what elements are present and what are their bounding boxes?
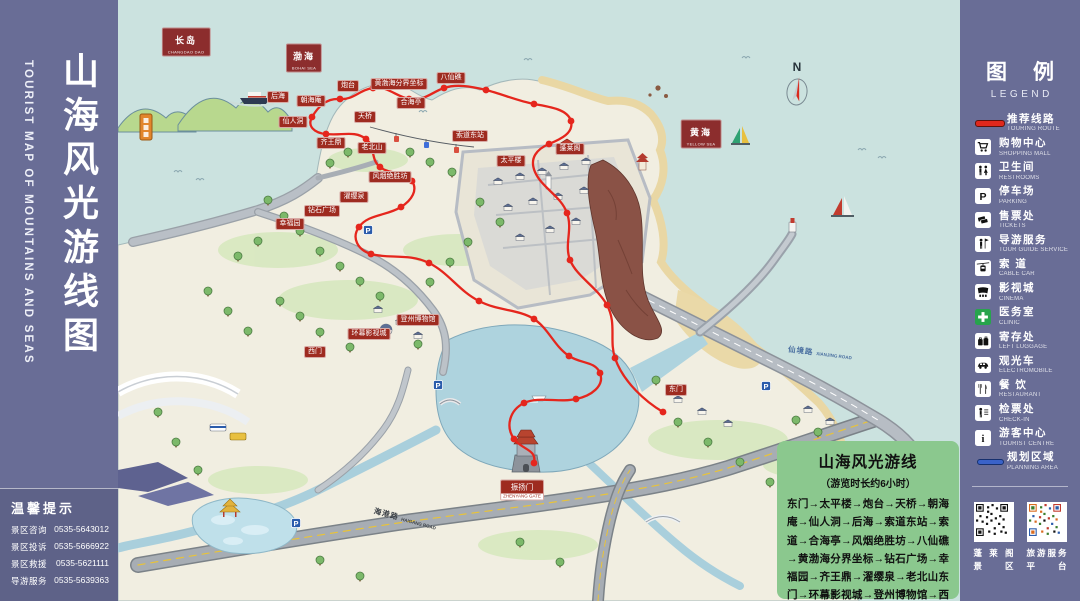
poi-houhai: 后海 [267,91,289,103]
map-title: 山海风光游线图 [52,52,104,360]
tickets-icon [975,212,991,228]
poi-xingfuyuan: 幸福园 [276,218,305,230]
poi-west-gate: 西门 [304,346,326,358]
restroom-icon [975,163,991,179]
poi-cinema-city: 环幕影视城 [348,328,391,340]
legend-parking: P 停车场PARKING [975,184,1080,208]
legend-clinic: 医务室CLINIC [975,305,1080,329]
map-title-english: TOURIST MAP OF MOUNTAINS AND SEAS [22,60,34,365]
route-box-duration: （游览时长约6小时） [787,475,949,490]
hotline-complaint: 景区投诉0535-5666922 [11,541,109,553]
poi-fengyanjuesheng-archway: 风烟绝胜坊 [369,171,412,183]
hotline-rescue: 景区救援0535-5621111 [11,558,109,570]
legend-left-luggage: 寄存处LEFT LUGGAGE [975,329,1080,353]
poi-penglai-pavilion: 蓬莱阁 [556,143,585,155]
sightseeing-car-icon [975,357,991,373]
tips-title: 温馨提示 [11,498,109,517]
poi-laobeishan: 老北山 [358,142,387,154]
fork-knife-icon [975,381,991,397]
clinic-cross-icon [975,309,991,325]
poi-east-gate: 东门 [665,384,687,396]
svg-text:P: P [979,191,986,203]
poi-sea-boundary-marker: 黄渤海分界坐标 [371,78,428,90]
route-line-icon [975,115,1005,131]
poi-paotai: 炮台 [337,80,359,92]
poi-zhuoyingquan: 濯缨泉 [340,191,369,203]
legend-restrooms: 卫生间RESTROOMS [975,159,1080,183]
legend-electromobile: 观光车ELECTROMOBILE [975,353,1080,377]
poi-tianqiao: 天桥 [354,111,376,123]
svg-text:P: P [763,382,768,391]
legend-title: 图例 [960,56,1080,86]
tour-guide-flag-icon [975,236,991,252]
shopping-cart-icon [975,139,991,155]
map-canvas: P P P P 长岛CHANGDAO DAO 渤海BOHAI SEA 黄海YEL… [118,0,960,601]
legend-tickets: 售票处TICKETS [975,208,1080,232]
legend-restaurant: 餐 饮RESTAURANT [975,377,1080,401]
poi-diamond-square: 钻石广场 [304,205,340,217]
bohai-sea-label: 渤海BOHAI SEA [286,44,322,73]
poi-chaohaian: 朝海庵 [297,95,326,107]
route-box-itinerary: 东门→太平楼→炮台→天桥→朝海庵→仙人洞→后海→索道东站→索道→合海亭→风烟绝胜… [787,495,949,601]
title-panel: TOURIST MAP OF MOUNTAINS AND SEAS 山海风光游线… [0,0,118,601]
tourist-map-page: P P P P 长岛CHANGDAO DAO 渤海BOHAI SEA 黄海YEL… [0,0,1080,601]
compass-needle-icon [782,72,813,111]
legend-shopping-mall: 购物中心SHOPPING MALL [975,135,1080,159]
cable-car-icon [975,260,991,276]
qr-service-platform: 旅游服务平台 [1027,502,1067,574]
poi-taipinglou: 太平楼 [497,155,526,167]
poi-cableway-east-station: 索道东站 [452,130,488,142]
qr-scenic-area-label: 蓬莱阁景区 [974,547,1014,574]
cinema-screen-icon [975,284,991,300]
qr-service-platform-label: 旅游服务平台 [1027,547,1067,574]
legend-items: 推荐线路TOURING ROUTE 购物中心SHOPPING MALL 卫生间R… [960,111,1080,474]
legend-subtitle: LEGEND [960,89,1080,100]
legend-panel: 图例 LEGEND 推荐线路TOURING ROUTE 购物中心SHOPPING… [960,0,1080,601]
qr-codes: 蓬莱阁景区 旅游 [960,502,1080,574]
tips-panel: 温馨提示 景区咨询0535-5643012 景区投诉0535-5666922 景… [0,488,118,601]
legend-cable-car: 索 道CABLE CAR [975,256,1080,280]
changdao-label: 长岛CHANGDAO DAO [162,28,211,57]
svg-text:P: P [435,381,440,390]
poi-hehaiting: 合海亭 [397,97,426,109]
planning-line-icon [975,454,1005,470]
svg-text:P: P [365,226,370,235]
poi-baxianjiao: 八仙礁 [437,72,466,84]
legend-planning-area: 规划区域PLANNING AREA [975,450,1080,474]
poi-xianrendong: 仙人洞 [279,116,308,128]
yellow-sea-label: 黄海YELLOW SEA [681,120,722,149]
route-summary-box: 山海风光游线 （游览时长约6小时） 东门→太平楼→炮台→天桥→朝海庵→仙人洞→后… [777,441,959,599]
legend-touring-route: 推荐线路TOURING ROUTE [975,111,1080,135]
info-icon: i [975,430,991,446]
hotline-consult: 景区咨询0535-5643012 [11,524,109,536]
qr-scenic-area: 蓬莱阁景区 [974,502,1014,574]
check-in-gate-icon [975,405,991,421]
legend-tourist-centre: i 游客中心TOURIST CENTRE [975,425,1080,449]
qr-scenic-area-image [974,502,1014,542]
poi-dengzhou-museum: 登州博物馆 [397,314,440,326]
poi-qiwangding: 齐王鼎 [317,137,346,149]
legend-cinema: 影视城CINEMA [975,280,1080,304]
legend-tour-guide: 导游服务TOUR GUIDE SERVICE [975,232,1080,256]
svg-text:P: P [293,519,298,528]
legend-divider [972,486,1068,487]
parking-icon: P [975,188,991,204]
luggage-icon [975,333,991,349]
legend-check-in: 检票处CHECK-IN [975,401,1080,425]
svg-text:i: i [982,433,985,444]
compass: N [784,60,810,115]
route-box-title: 山海风光游线 [787,450,949,472]
hotline-guide: 导游服务0535-5639363 [11,575,109,587]
qr-service-platform-image [1027,502,1067,542]
gate-sign [140,114,152,140]
breakwater-pier [700,218,796,332]
zhenyang-gate-label: 振扬门ZHENYANG GATE [500,480,544,501]
